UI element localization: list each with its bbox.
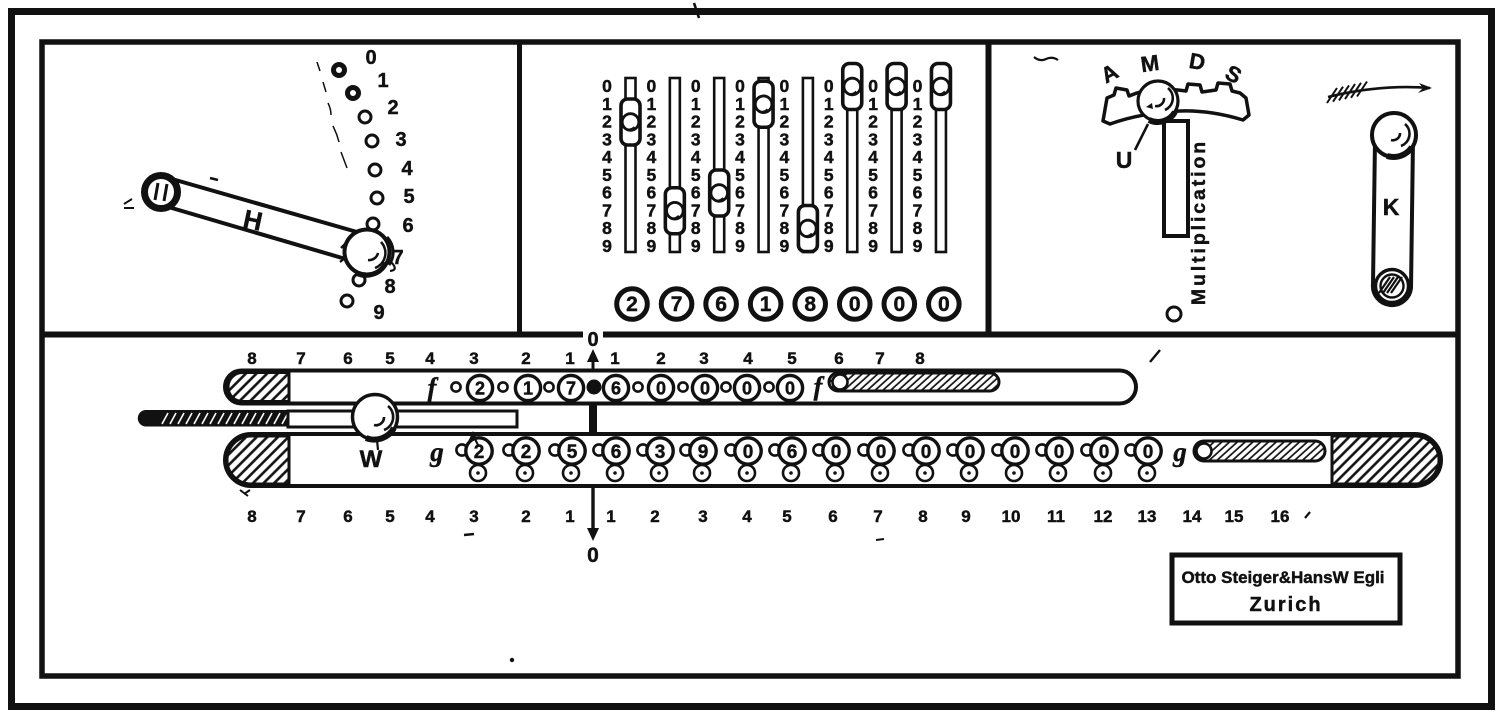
svg-text:0: 0: [1099, 442, 1110, 463]
svg-text:5: 5: [403, 186, 414, 208]
svg-text:4: 4: [743, 349, 753, 368]
svg-text:7: 7: [873, 507, 882, 526]
svg-text:0: 0: [938, 293, 950, 316]
svg-text:6: 6: [402, 215, 413, 237]
svg-text:K: K: [1383, 194, 1400, 220]
svg-text:0: 0: [1054, 442, 1065, 463]
svg-text:g: g: [1172, 437, 1187, 467]
svg-text:0: 0: [1143, 442, 1154, 463]
svg-text:0: 0: [700, 379, 710, 399]
svg-text:Multiplication: Multiplication: [1188, 139, 1210, 305]
svg-text:2: 2: [475, 379, 485, 399]
svg-text:8: 8: [804, 293, 816, 316]
svg-text:g: g: [429, 437, 444, 467]
svg-text:4: 4: [425, 349, 435, 368]
svg-text:8: 8: [384, 276, 395, 298]
svg-text:9: 9: [780, 236, 790, 256]
svg-text:W: W: [360, 446, 383, 473]
svg-text:9: 9: [602, 236, 612, 256]
svg-text:6: 6: [715, 293, 727, 316]
svg-text:7: 7: [875, 349, 884, 368]
svg-text:Zurich: Zurich: [1249, 594, 1322, 616]
svg-text:4: 4: [742, 507, 752, 526]
svg-text:8: 8: [247, 349, 256, 368]
svg-text:1: 1: [377, 70, 388, 92]
svg-text:0: 0: [587, 329, 598, 351]
svg-text:0: 0: [876, 442, 887, 463]
svg-text:2: 2: [474, 442, 485, 463]
svg-text:7: 7: [296, 507, 305, 526]
svg-text:6: 6: [828, 507, 837, 526]
svg-text:6: 6: [787, 442, 798, 463]
svg-text:6: 6: [343, 507, 352, 526]
svg-text:5: 5: [385, 507, 394, 526]
svg-text:11: 11: [1047, 507, 1065, 526]
svg-text:2: 2: [656, 349, 665, 368]
svg-text:13: 13: [1138, 507, 1157, 526]
svg-text:16: 16: [1271, 507, 1290, 526]
svg-text:3: 3: [395, 129, 406, 151]
svg-text:10: 10: [1002, 507, 1021, 526]
svg-text:7: 7: [566, 379, 576, 399]
svg-text:Otto Steiger&HansW Egli: Otto Steiger&HansW Egli: [1181, 568, 1384, 587]
svg-text:6: 6: [611, 442, 622, 463]
svg-text:U: U: [1116, 147, 1133, 173]
svg-text:4: 4: [401, 158, 413, 180]
svg-text:2: 2: [650, 507, 659, 526]
svg-text:2: 2: [521, 349, 530, 368]
svg-text:8: 8: [915, 349, 924, 368]
svg-text:15: 15: [1225, 507, 1244, 526]
svg-text:6: 6: [834, 349, 843, 368]
svg-text:12: 12: [1094, 507, 1113, 526]
svg-text:0: 0: [893, 293, 905, 316]
svg-text:2: 2: [387, 97, 398, 119]
svg-text:0: 0: [1010, 442, 1021, 463]
svg-text:3: 3: [699, 349, 708, 368]
svg-text:0: 0: [921, 442, 932, 463]
svg-text:4: 4: [425, 507, 435, 526]
svg-text:9: 9: [868, 236, 878, 256]
svg-text:1: 1: [760, 293, 772, 316]
svg-text:1: 1: [565, 507, 574, 526]
svg-text:9: 9: [961, 507, 970, 526]
svg-text:5: 5: [782, 507, 791, 526]
svg-text:0: 0: [656, 379, 666, 399]
svg-text:0: 0: [831, 442, 842, 463]
svg-text:9: 9: [373, 302, 384, 324]
svg-text:1: 1: [565, 349, 574, 368]
svg-text:3: 3: [698, 507, 707, 526]
svg-text:3: 3: [469, 507, 478, 526]
svg-text:0: 0: [742, 379, 752, 399]
svg-text:1: 1: [606, 507, 615, 526]
svg-text:0: 0: [785, 379, 795, 399]
svg-text:5: 5: [385, 349, 394, 368]
svg-text:8: 8: [247, 507, 256, 526]
svg-text:0: 0: [587, 544, 599, 567]
svg-text:0: 0: [365, 47, 376, 69]
svg-text:8: 8: [918, 507, 927, 526]
svg-text:6: 6: [343, 349, 352, 368]
svg-text:7: 7: [296, 349, 305, 368]
svg-text:9: 9: [913, 236, 923, 256]
svg-text:14: 14: [1183, 507, 1202, 526]
svg-text:9: 9: [698, 442, 709, 463]
svg-text:1: 1: [523, 379, 533, 399]
svg-text:9: 9: [735, 236, 745, 256]
svg-text:9: 9: [824, 236, 834, 256]
svg-text:2: 2: [521, 507, 530, 526]
svg-text:3: 3: [469, 349, 478, 368]
svg-text:9: 9: [691, 236, 701, 256]
svg-text:9: 9: [646, 236, 656, 256]
svg-text:M: M: [1139, 50, 1161, 77]
svg-text:5: 5: [787, 349, 796, 368]
svg-text:0: 0: [849, 293, 861, 316]
svg-text:0: 0: [743, 442, 754, 463]
svg-text:0: 0: [965, 442, 976, 463]
svg-text:6: 6: [611, 379, 621, 399]
svg-text:5: 5: [567, 442, 578, 463]
svg-text:2: 2: [521, 442, 532, 463]
svg-text:1: 1: [610, 349, 619, 368]
svg-text:7: 7: [671, 293, 683, 316]
svg-text:3: 3: [655, 442, 666, 463]
svg-text:2: 2: [626, 293, 638, 316]
